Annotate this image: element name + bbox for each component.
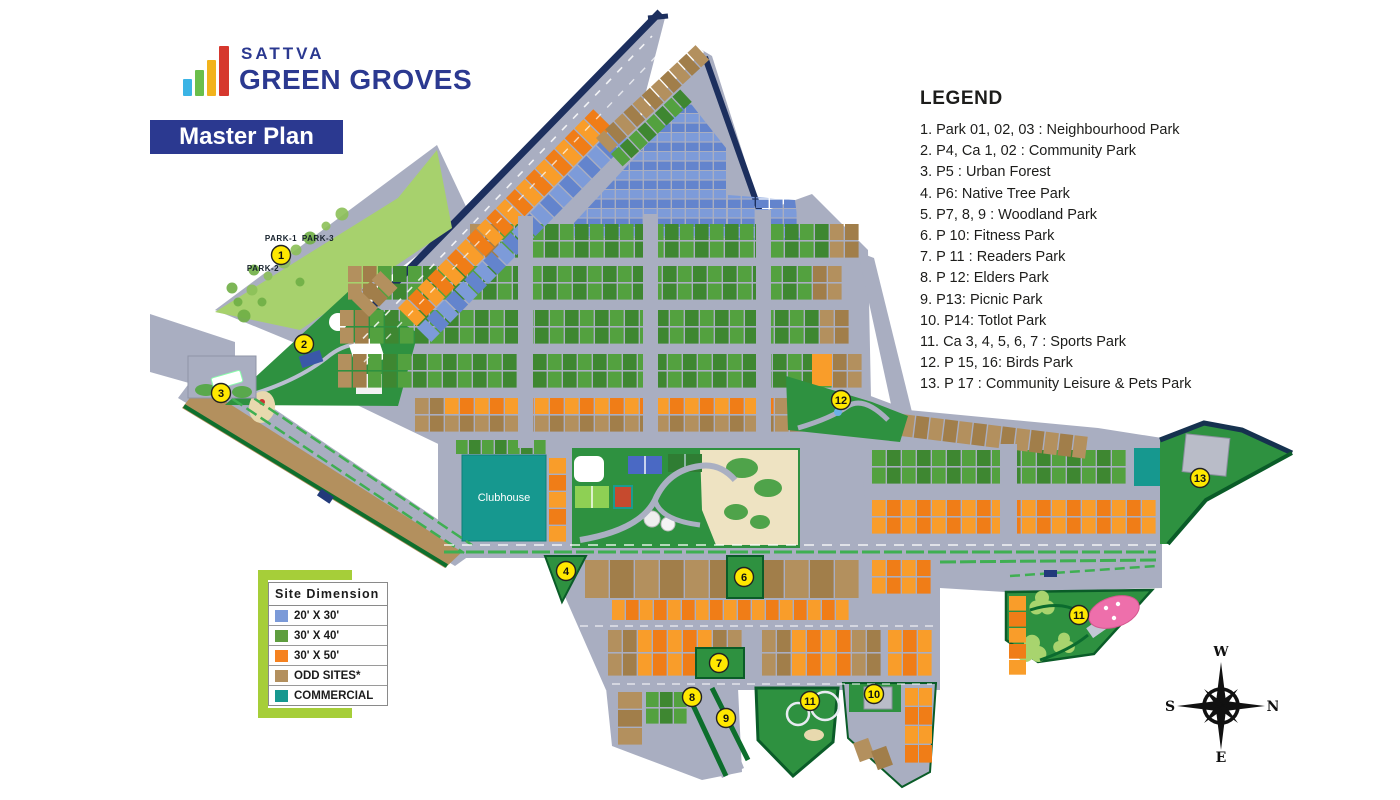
- compass-bottom-label: E: [1216, 750, 1227, 764]
- logo-bar-4: [219, 46, 229, 96]
- compass-right-label: N: [1267, 699, 1278, 715]
- site-dimension-label: ODD SITES*: [294, 670, 360, 682]
- svg-text:1: 1: [278, 250, 284, 262]
- legend-list: 1. Park 01, 02, 03 : Neighbourhood Park2…: [920, 120, 1260, 396]
- legend-item: 6. P 10: Fitness Park: [920, 226, 1260, 247]
- master-plan-page: { "brand": { "name": "SATTVA", "product"…: [0, 0, 1400, 800]
- legend-panel: LEGEND 1. Park 01, 02, 03 : Neighbourhoo…: [920, 88, 1260, 396]
- site-dimension-title: Site Dimension: [269, 583, 387, 606]
- svg-text:7: 7: [716, 658, 722, 670]
- plot-row: [549, 458, 566, 542]
- legend-item: 1. Park 01, 02, 03 : Neighbourhood Park: [920, 120, 1260, 141]
- compass-icon: W N S E: [1166, 646, 1278, 764]
- map-marker-7: 7: [710, 654, 729, 673]
- map-marker-11: 11: [1070, 606, 1089, 625]
- svg-text:12: 12: [835, 395, 847, 407]
- page-title: Master Plan: [150, 120, 343, 154]
- legend-item: 10. P14: Totlot Park: [920, 311, 1260, 332]
- clubhouse-label: Clubhouse: [478, 492, 531, 504]
- compass-top-label: W: [1212, 646, 1229, 660]
- site-dimension-label: 20' X 30': [294, 610, 339, 622]
- map-marker-13: 13: [1191, 469, 1210, 488]
- site-dimension-label: COMMERCIAL: [294, 690, 373, 702]
- legend-item: 4. P6: Native Tree Park: [920, 184, 1260, 205]
- map-marker-2: 2: [295, 335, 314, 354]
- site-dimension-label: 30' X 50': [294, 650, 339, 662]
- map-marker-1: 1: [272, 246, 291, 265]
- brand-name: SATTVA: [241, 45, 472, 62]
- legend-item: 11. Ca 3, 4, 5, 6, 7 : Sports Park: [920, 332, 1260, 353]
- legend-item: 12. P 15, 16: Birds Park: [920, 353, 1260, 374]
- svg-text:11: 11: [1073, 610, 1085, 622]
- color-swatch: [275, 670, 288, 682]
- color-swatch: [275, 630, 288, 642]
- legend-item: 2. P4, Ca 1, 02 : Community Park: [920, 141, 1260, 162]
- color-swatch: [275, 690, 288, 702]
- map-marker-9: 9: [717, 709, 736, 728]
- map-marker-6: 6: [735, 568, 754, 587]
- color-swatch: [275, 610, 288, 622]
- compass-rose: W N S E: [1166, 646, 1278, 764]
- legend-item: 5. P7, 8, 9 : Woodland Park: [920, 205, 1260, 226]
- plot-row: [585, 560, 859, 598]
- map-marker-10: 10: [865, 685, 884, 704]
- svg-text:6: 6: [741, 572, 747, 584]
- site-dimension-row: COMMERCIAL: [269, 686, 387, 705]
- svg-text:9: 9: [723, 713, 729, 725]
- plot-row: [1009, 596, 1026, 675]
- svg-text:10: 10: [868, 689, 880, 701]
- site-dimension-row: 30' X 40': [269, 626, 387, 646]
- logo-bar-3: [207, 60, 216, 96]
- compass-left-label: S: [1166, 699, 1175, 715]
- color-swatch: [275, 650, 288, 662]
- brand-logo: SATTVA GREEN GROVES: [183, 44, 472, 96]
- site-dimension-row: ODD SITES*: [269, 666, 387, 686]
- legend-item: 7. P 11 : Readers Park: [920, 247, 1260, 268]
- svg-text:2: 2: [301, 339, 307, 351]
- logo-bar-2: [195, 70, 204, 96]
- site-dimension-panel: Site Dimension 20' X 30'30' X 40'30' X 5…: [268, 582, 388, 706]
- svg-text:11: 11: [804, 696, 816, 708]
- plot-row: [612, 600, 849, 620]
- plot-row: [618, 692, 642, 745]
- logo-bar-1: [183, 79, 192, 96]
- brand-product: GREEN GROVES: [239, 66, 472, 94]
- map-marker-11: 11: [801, 692, 820, 711]
- bar-chart-logo-icon: [183, 44, 229, 96]
- park-label: PARK-1: [265, 234, 297, 243]
- map-marker-12: 12: [832, 391, 851, 410]
- svg-text:4: 4: [563, 566, 570, 578]
- legend-item: 13. P 17 : Community Leisure & Pets Park: [920, 374, 1260, 395]
- park-label: PARK-2: [247, 264, 279, 273]
- map-marker-3: 3: [212, 384, 231, 403]
- legend-title: LEGEND: [920, 88, 1260, 110]
- map-marker-8: 8: [683, 688, 702, 707]
- site-dimension-row: 30' X 50': [269, 646, 387, 666]
- park-label: PARK-3: [302, 234, 334, 243]
- map-marker-4: 4: [557, 562, 576, 581]
- svg-text:8: 8: [689, 692, 695, 704]
- site-dimension-label: 30' X 40': [294, 630, 339, 642]
- legend-item: 3. P5 : Urban Forest: [920, 162, 1260, 183]
- legend-item: 9. P13: Picnic Park: [920, 290, 1260, 311]
- site-dimension-rows: 20' X 30'30' X 40'30' X 50'ODD SITES*COM…: [269, 606, 387, 705]
- site-dimension-row: 20' X 30': [269, 606, 387, 626]
- legend-item: 8. P 12: Elders Park: [920, 268, 1260, 289]
- svg-text:3: 3: [218, 388, 224, 400]
- svg-text:13: 13: [1194, 473, 1206, 485]
